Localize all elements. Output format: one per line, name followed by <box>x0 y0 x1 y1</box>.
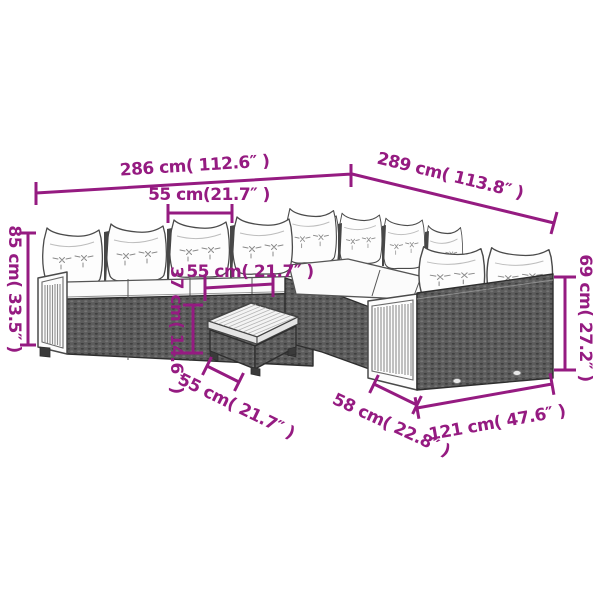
dim-total-height-label: 85 cm( 33.5″ ) <box>4 225 24 352</box>
corner-pillow <box>286 209 336 263</box>
right-sofa-wood-panel <box>368 294 417 390</box>
sofa-set-dimension-svg: 286 cm( 112.6″ ) 289 cm( 113.8″ ) 55 cm(… <box>0 0 600 600</box>
dim-right-backrest-height: 69 cm( 27.2″ ) <box>554 254 595 381</box>
dim-right-sofa-width-label: 121 cm( 47.6″ ) <box>427 401 567 445</box>
dim-right-backrest-height-label: 69 cm( 27.2″ ) <box>575 254 595 381</box>
dim-seat-module-width-label: 55 cm(21.7″ ) <box>148 185 270 205</box>
dim-table-depth: 55 cm( 21.7″ ) <box>175 357 298 443</box>
foot-cap <box>453 379 461 384</box>
dim-overall-width-label: 286 cm( 112.6″ ) <box>119 151 270 180</box>
dim-seat-module-width: 55 cm(21.7″ ) <box>148 185 270 223</box>
dim-overall-depth-label: 289 cm( 113.8″ ) <box>375 149 525 204</box>
dim-total-height: 85 cm( 33.5″ ) <box>4 225 36 352</box>
left-armrest-wood-panel <box>38 272 67 357</box>
dimension-diagram: 286 cm( 112.6″ ) 289 cm( 113.8″ ) 55 cm(… <box>0 0 600 600</box>
dim-overall-depth: 289 cm( 113.8″ ) <box>352 149 557 234</box>
right-sofa-back-panel <box>417 274 553 390</box>
dim-table-width-label: 55 cm( 21.7″ ) <box>186 262 313 282</box>
sofa-set-illustration <box>38 209 553 390</box>
foot-cap <box>513 371 521 376</box>
